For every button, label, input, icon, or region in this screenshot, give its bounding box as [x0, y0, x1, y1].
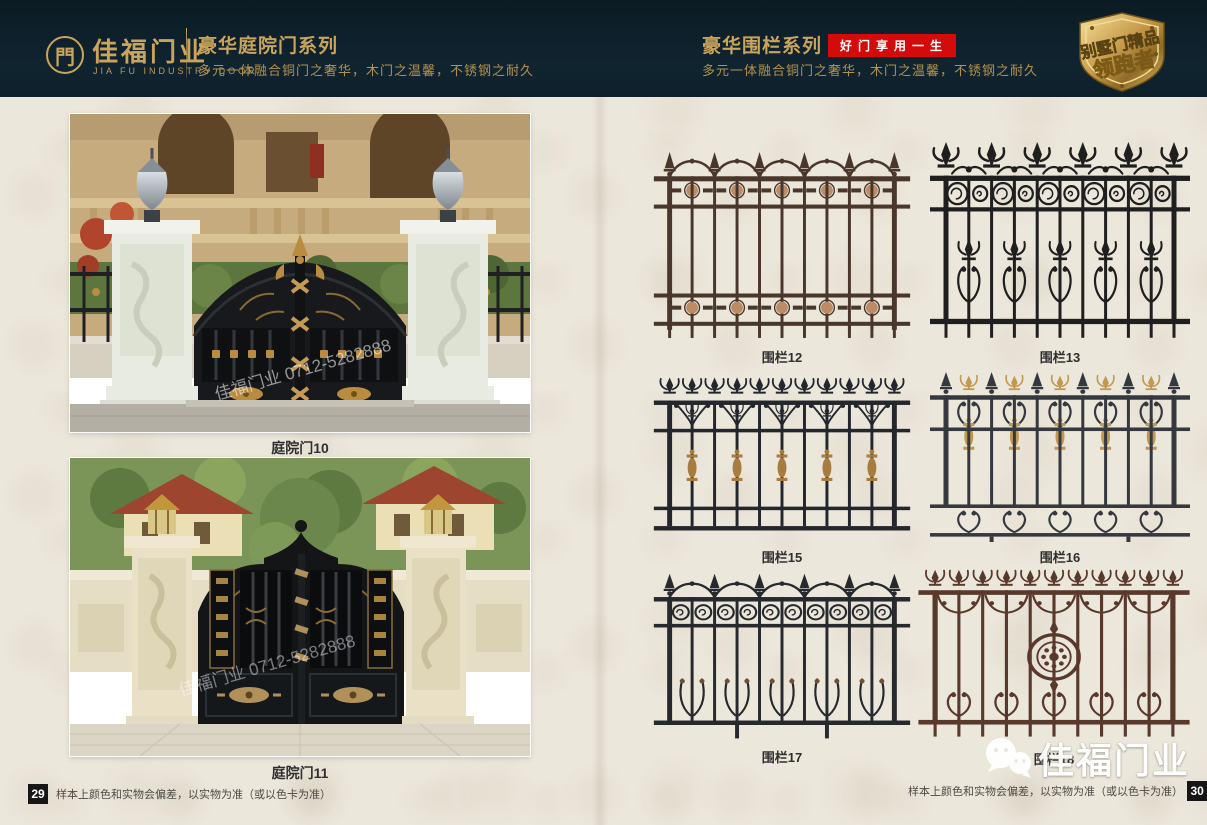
page-number-right: 30 [1187, 781, 1207, 801]
ground [70, 400, 530, 432]
fence-image-12 [644, 150, 920, 342]
photo-caption-11: 庭院门11 [70, 763, 530, 783]
fence-caption-15: 围栏15 [762, 547, 802, 566]
brand-watermark: 佳福门业 [982, 732, 1190, 784]
right-series-title: 豪华围栏系列 [702, 31, 822, 58]
fence-caption-12: 围栏12 [762, 347, 802, 366]
fence-caption-13: 围栏13 [1040, 347, 1080, 366]
fence-product-15: 围栏15 [644, 374, 920, 566]
catalog-spread: 門 佳福门业 JIA FU INDUSTRY DOOR 豪华庭院门系列 多元一体… [0, 0, 1207, 825]
brand-name-cn: 佳福门业 [92, 32, 208, 69]
footer-left: 29 样本上颜色和实物会偏差，以实物为准（或以色卡为准） [28, 784, 331, 804]
footnote-left: 样本上颜色和实物会偏差，以实物为准（或以色卡为准） [56, 786, 331, 802]
footer-right: 样本上颜色和实物会偏差，以实物为准（或以色卡为准） 30 [908, 781, 1207, 801]
fence-image-15 [644, 374, 920, 542]
fence-product-13: 围栏13 [920, 142, 1200, 366]
chat-bubbles-icon [982, 736, 1034, 780]
fence-caption-16: 围栏16 [1040, 547, 1080, 566]
fence-image-17 [644, 572, 920, 742]
pavement [70, 724, 530, 756]
fence-image-16 [920, 372, 1200, 542]
fence-product-12: 围栏12 [644, 150, 920, 366]
right-series-subtitle: 多元一体融合铜门之奢华，木门之温馨，不锈钢之耐久 [702, 60, 1038, 79]
brand-logo-icon: 門 [46, 36, 84, 74]
page-number-left: 29 [28, 784, 48, 804]
fence-image-18 [908, 568, 1200, 744]
fence-product-16: 围栏16 [920, 372, 1200, 566]
fence-image-13 [920, 142, 1200, 342]
photo-courtyard-gate-11: 佳福门业 0712-5282888 [70, 458, 530, 756]
logo-glyph: 門 [55, 41, 75, 70]
gold-shield-emblem: 别墅门精品 领跑者 [1066, 10, 1178, 94]
brand-watermark-text: 佳福门业 [1038, 732, 1190, 784]
header-band: 門 佳福门业 JIA FU INDUSTRY DOOR 豪华庭院门系列 多元一体… [0, 0, 1207, 97]
footnote-right: 样本上颜色和实物会偏差，以实物为准（或以色卡为准） [908, 783, 1179, 799]
header-divider [186, 28, 187, 78]
left-series-subtitle: 多元一体融合铜门之奢华，木门之温馨，不锈钢之耐久 [198, 60, 534, 79]
slogan-badge: 好门享用一生 [828, 34, 956, 57]
photo-caption-10: 庭院门10 [70, 438, 530, 458]
photo-courtyard-gate-10: 佳福门业 0712-5282888 [70, 114, 530, 432]
page-fold-shadow [592, 97, 608, 825]
fence-product-17: 围栏17 [644, 572, 920, 766]
fence-caption-17: 围栏17 [762, 747, 802, 766]
left-series-title: 豪华庭院门系列 [198, 31, 338, 58]
